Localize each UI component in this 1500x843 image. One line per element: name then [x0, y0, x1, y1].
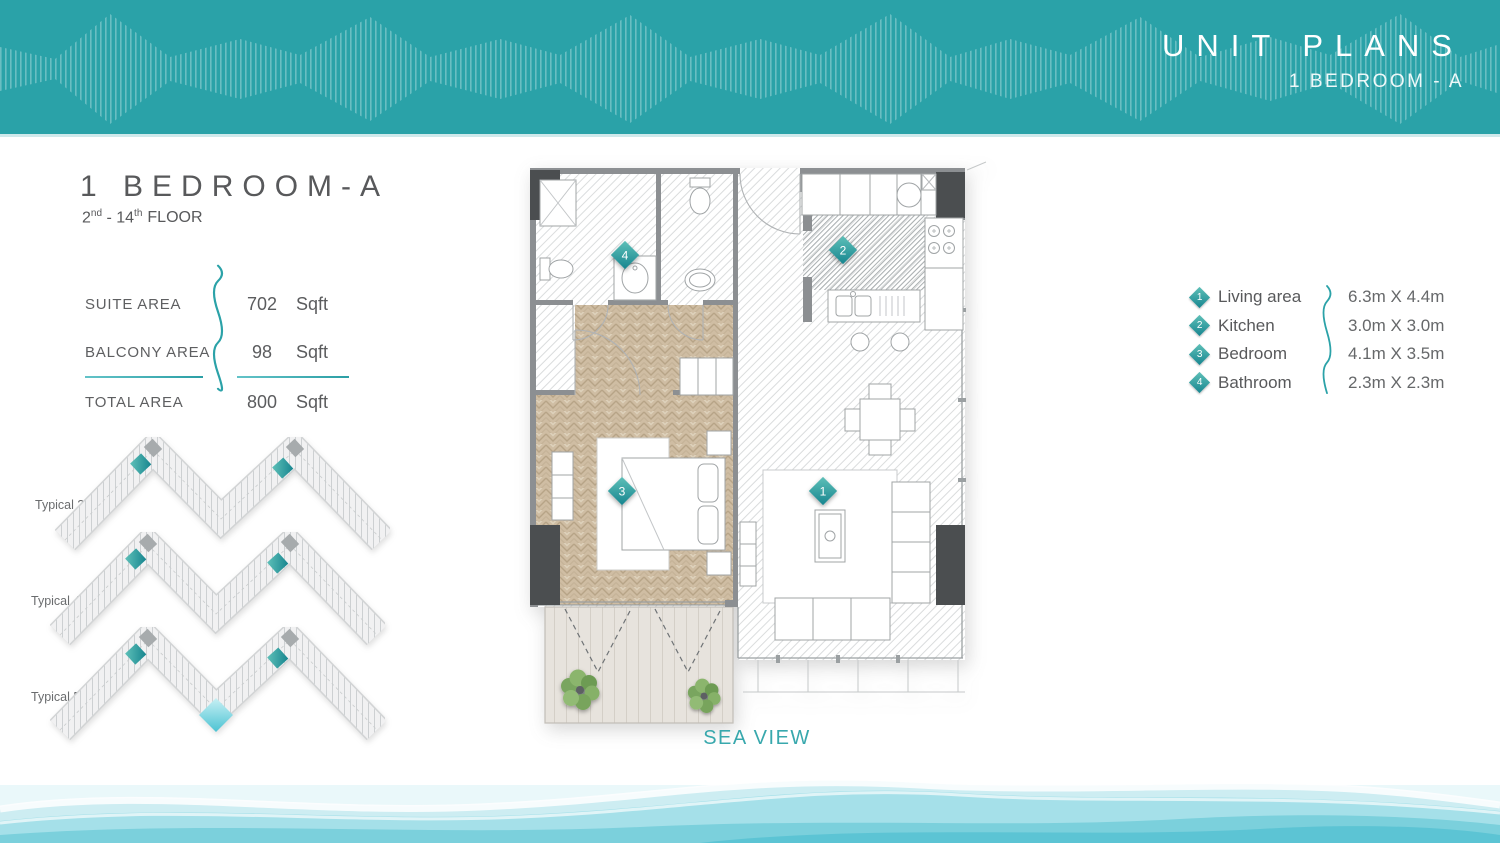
typical-5-floorplate: [50, 627, 385, 742]
area-summary: SUITE AREA 702 Sqft BALCONY AREA 98 Sqft…: [85, 280, 357, 426]
pillow-icon: [698, 464, 718, 502]
divider-line-left: [85, 376, 203, 378]
divider-line-right: [237, 376, 349, 378]
toilet-icon: [690, 178, 710, 214]
tv-console: [740, 522, 756, 586]
svg-text:4: 4: [622, 249, 629, 263]
balcony-area-unit: Sqft: [296, 342, 328, 363]
kitchen-floor: [803, 215, 925, 290]
header-banner: UNIT PLANS 1 BEDROOM - A: [0, 0, 1500, 137]
legend-row-bedroom: 3 Bedroom 4.1m X 3.5m: [1188, 340, 1458, 369]
room-legend: 1 Living area 6.3m X 4.4m 2 Kitchen 3.0m…: [1188, 283, 1458, 397]
legend-diamond-icon: 1: [1189, 287, 1210, 308]
suite-area-value: 702: [235, 294, 289, 315]
legend-dimensions: 4.1m X 3.5m: [1348, 344, 1444, 364]
legend-dimensions: 2.3m X 2.3m: [1348, 373, 1444, 393]
legend-row-living: 1 Living area 6.3m X 4.4m: [1188, 283, 1458, 312]
kitchen-sink-island: [828, 290, 920, 322]
dresser: [552, 452, 573, 520]
floor-to: 14: [116, 209, 134, 226]
legend-dimensions: 6.3m X 4.4m: [1348, 287, 1444, 307]
bed: [622, 458, 725, 550]
sea-view-label: SEA VIEW: [657, 727, 857, 750]
unit-plans-page: UNIT PLANS 1 BEDROOM - A 1 BEDROOM-A 2nd…: [0, 0, 1500, 843]
bar-stool-icon: [891, 333, 909, 351]
suite-area-unit: Sqft: [296, 294, 328, 315]
svg-text:3: 3: [619, 485, 626, 499]
legend-label: Bathroom: [1218, 373, 1336, 393]
balcony-area-value: 98: [235, 342, 289, 363]
floor-from: 2: [82, 209, 91, 226]
legend-diamond-icon: 4: [1189, 372, 1210, 393]
legend-label: Living area: [1218, 287, 1336, 307]
coffee-table: [815, 510, 845, 562]
pillow-icon: [698, 506, 718, 544]
sea-waves-image: [0, 751, 1500, 843]
legend-label: Kitchen: [1218, 316, 1336, 336]
toilet-icon: [540, 258, 573, 280]
wardrobe: [680, 358, 733, 395]
legend-label: Bedroom: [1218, 344, 1336, 364]
total-divider: [85, 376, 357, 378]
legend-diamond-icon: 3: [1189, 344, 1210, 365]
floor-range: 2nd - 14thFLOOR: [82, 208, 203, 227]
svg-text:1: 1: [820, 485, 827, 499]
floor-to-suffix: th: [134, 208, 142, 219]
floor-from-suffix: nd: [91, 208, 102, 219]
squiggle-divider-icon: [211, 264, 227, 420]
total-area-value: 800: [235, 392, 289, 413]
unit-title: 1 BEDROOM-A: [80, 170, 389, 204]
floor-word: FLOOR: [147, 209, 202, 226]
fridge-icon: [897, 183, 921, 207]
bar-stool-icon: [851, 333, 869, 351]
legend-row-kitchen: 2 Kitchen 3.0m X 3.0m: [1188, 312, 1458, 341]
page-title: UNIT PLANS: [1162, 28, 1464, 64]
nightstand: [707, 431, 731, 455]
floor-separator: -: [102, 209, 116, 226]
unit-floor-plan: 1 2 3 4: [518, 158, 990, 738]
total-area-unit: Sqft: [296, 392, 328, 413]
nightstand: [707, 552, 731, 575]
svg-text:2: 2: [840, 244, 847, 258]
page-subtitle: 1 BEDROOM - A: [1162, 71, 1464, 93]
legend-dimensions: 3.0m X 3.0m: [1348, 316, 1444, 336]
wc-sink-icon: [685, 269, 715, 291]
legend-diamond-icon: 2: [1189, 315, 1210, 336]
legend-row-bathroom: 4 Bathroom 2.3m X 2.3m: [1188, 369, 1458, 398]
